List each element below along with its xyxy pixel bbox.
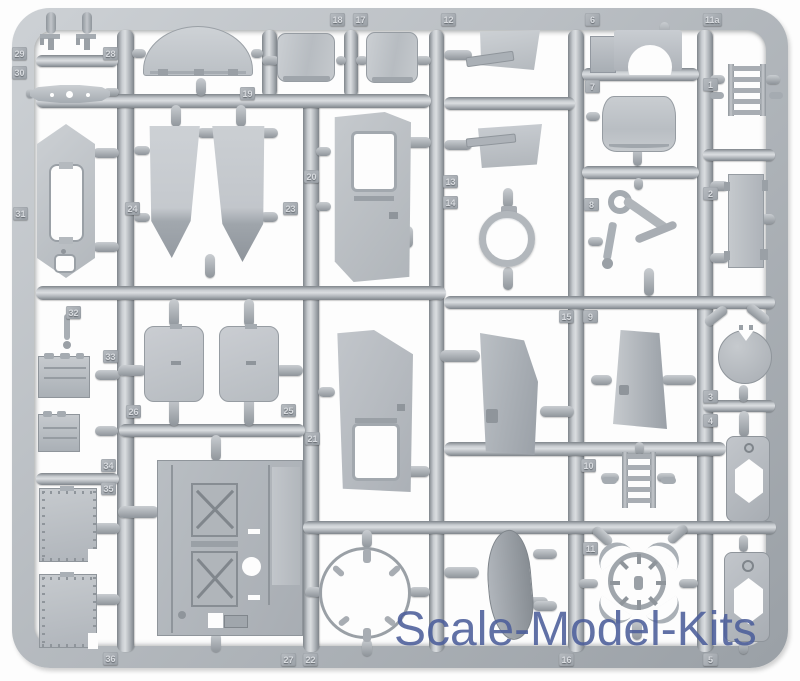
sprue-gate [739, 535, 748, 552]
part-detail [372, 77, 413, 82]
part-detail [48, 38, 54, 50]
part-detail [724, 182, 730, 191]
part-number-tag: 22 [303, 653, 318, 666]
part-number-tag: 26 [126, 405, 141, 418]
runner-vertical [697, 30, 713, 652]
part-number-tag: 1 [703, 78, 718, 91]
part-number-tag: 2 [703, 187, 718, 200]
part-hood-panel-7 [602, 96, 676, 152]
sprue-photo: 2930312819181712611a71202423131482321593… [0, 0, 800, 681]
part-detail [88, 633, 98, 649]
part-detail [40, 38, 44, 45]
part-detail [171, 465, 173, 633]
part-detail [609, 144, 669, 148]
sprue-gate [95, 370, 120, 380]
sprue-gate [586, 112, 600, 121]
part-detail [208, 613, 223, 628]
part-detail [60, 486, 74, 491]
part-detail [84, 38, 90, 50]
part-detail [246, 361, 256, 365]
part-number-tag: 13 [443, 175, 458, 188]
part-number-tag: 30 [12, 66, 27, 79]
part-detail [178, 611, 186, 619]
part-number-tag: 28 [103, 47, 118, 60]
part-detail [194, 69, 204, 75]
part-detail [76, 353, 84, 359]
part-number-tag: 32 [66, 306, 81, 319]
part-detail [602, 477, 617, 484]
part-number-tag: 34 [101, 459, 116, 472]
part-number-tag: 24 [125, 202, 140, 215]
part-detail [735, 459, 763, 503]
part-detail [486, 409, 498, 423]
part-detail [44, 377, 86, 379]
part-detail [57, 411, 66, 417]
part-number-tag: 3 [703, 390, 718, 403]
part-detail [248, 529, 260, 534]
part-number-tag: 12 [441, 13, 456, 26]
part-hex-frame-31 [37, 124, 95, 278]
part-detail [82, 12, 92, 34]
part-number-tag: 15 [559, 310, 574, 323]
sprue-gate [251, 49, 263, 58]
part-disc-3 [718, 328, 772, 388]
part-cab-door-20 [329, 112, 411, 282]
part-detail [397, 404, 405, 411]
part-number-tag: 31 [13, 207, 28, 220]
part-detail [66, 91, 73, 98]
part-detail [51, 166, 82, 240]
part-detail [63, 341, 71, 349]
runner-vertical [568, 30, 584, 652]
part-clamp-b [76, 12, 100, 48]
sprue-gate [93, 594, 120, 605]
part-ring-14 [477, 206, 541, 272]
part-number-tag: 23 [283, 202, 298, 215]
part-detail [389, 212, 398, 219]
part-detail [43, 437, 77, 439]
part-detail [43, 427, 77, 429]
part-detail [242, 557, 261, 576]
part-detail [44, 367, 86, 369]
part-detail [355, 426, 397, 478]
sprue-gate [93, 242, 119, 252]
part-detail [363, 628, 371, 642]
part-rivet-panel-35 [39, 488, 97, 562]
part-detail [354, 196, 394, 201]
part-number-tag: 21 [305, 432, 320, 445]
part-crossbar-30 [30, 85, 110, 103]
part-detail [59, 237, 73, 244]
part-pin-32 [62, 314, 72, 350]
part-ladder-1 [723, 64, 771, 116]
sprue-gate [236, 105, 246, 127]
part-detail [42, 491, 96, 494]
sprue-gate [93, 523, 120, 534]
part-detail [610, 581, 620, 585]
part-detail [42, 577, 45, 647]
sprue-gate [662, 375, 696, 385]
part-hatch-26b [219, 326, 279, 402]
part-detail [228, 69, 238, 75]
part-detail [762, 180, 768, 191]
sprue-gate [540, 406, 574, 417]
sprue-gate [244, 299, 254, 327]
sprue-gate [132, 49, 146, 58]
part-panel-18 [277, 33, 335, 82]
sprue-gate [503, 188, 513, 208]
part-detail [61, 249, 66, 254]
part-number-tag: 20 [304, 170, 319, 183]
part-detail [744, 443, 754, 453]
part-cab-door-21 [335, 330, 413, 492]
part-detail [733, 66, 761, 115]
part-detail [760, 249, 768, 260]
part-number-tag: 18 [330, 13, 345, 26]
part-detail [43, 411, 52, 417]
part-ladder-10 [616, 452, 662, 510]
part-detail [42, 577, 96, 580]
part-frame-4 [726, 436, 770, 522]
part-number-tag: 9 [583, 310, 598, 323]
sprue-gate [171, 105, 181, 127]
sprue-gate [440, 350, 480, 362]
part-clamp-a [40, 12, 64, 48]
part-step-12 [466, 28, 544, 82]
part-detail [191, 541, 238, 547]
part-detail [60, 353, 70, 359]
part-detail [86, 93, 90, 97]
part-number-tag: 11a [703, 13, 722, 26]
part-number-tag: 8 [584, 198, 599, 211]
part-box-33b [38, 414, 80, 452]
sprue-gate [118, 506, 159, 518]
part-curved-panel-9 [613, 330, 667, 429]
part-number-tag: 33 [103, 350, 118, 363]
runner-horizontal [703, 149, 775, 161]
sprue-gate [205, 254, 215, 278]
part-detail [60, 572, 74, 577]
part-number-tag: 36 [103, 652, 118, 665]
part-number-tag: 17 [353, 13, 368, 26]
part-detail [44, 353, 54, 359]
part-detail [480, 333, 538, 455]
part-detail [710, 92, 724, 99]
sprue-gate [275, 365, 303, 376]
part-detail [637, 554, 641, 564]
runner-vertical [117, 30, 134, 652]
sprue-gate [591, 375, 612, 385]
part-detail [88, 549, 98, 563]
sprue-gate [211, 435, 221, 461]
part-detail [479, 211, 535, 267]
part-detail [742, 560, 754, 572]
part-detail [42, 491, 45, 561]
part-detail [363, 549, 371, 563]
sprue-gate [533, 549, 557, 559]
part-floor-panel-27 [157, 460, 303, 636]
runner-horizontal [582, 166, 699, 179]
part-detail [46, 12, 56, 34]
part-detail [603, 222, 617, 261]
runner-vertical [344, 30, 358, 98]
part-detail [76, 38, 80, 45]
runner-horizontal [444, 97, 575, 110]
sprue-gate [588, 237, 603, 246]
part-detail [355, 418, 397, 423]
sprue-gate [134, 146, 150, 155]
part-detail [634, 576, 643, 590]
part-panel-2 [728, 174, 764, 268]
sprue-gate [93, 148, 119, 158]
part-detail [224, 615, 248, 628]
part-number-tag: 10 [581, 459, 596, 472]
runner-horizontal [36, 286, 446, 300]
runner-vertical [429, 30, 444, 652]
part-detail [656, 581, 666, 585]
sprue-gate [118, 365, 146, 376]
part-number-tag: 4 [703, 414, 718, 427]
part-detail [272, 467, 300, 585]
sprue-gate [196, 78, 206, 96]
runner-horizontal [303, 521, 776, 534]
part-detail [283, 76, 330, 81]
part-detail [619, 385, 629, 395]
sprue-gate [318, 387, 335, 397]
part-number-tag: 11 [583, 542, 598, 555]
part-number-tag: 27 [281, 653, 296, 666]
part-number-tag: 35 [101, 482, 116, 495]
part-detail [158, 69, 168, 75]
part-detail [170, 324, 182, 329]
part-detail [661, 477, 676, 484]
part-detail [478, 124, 542, 168]
part-detail [268, 465, 270, 605]
part-detail [245, 324, 257, 329]
part-fender-6 [590, 30, 684, 75]
sprue-gate [336, 56, 346, 65]
part-detail [50, 93, 54, 97]
part-detail [248, 595, 260, 600]
part-detail [724, 251, 730, 260]
part-panel-17 [366, 32, 418, 83]
part-detail [627, 454, 651, 507]
part-detail [590, 36, 616, 73]
part-detail [59, 162, 73, 169]
part-detail [769, 92, 783, 99]
part-number-tag: 29 [12, 47, 27, 60]
sprue-gate [444, 567, 479, 578]
sprue-gate [169, 299, 179, 327]
part-number-tag: 19 [240, 87, 255, 100]
part-bracket-8 [604, 188, 670, 276]
part-curved-panel-15 [480, 333, 538, 455]
part-number-tag: 25 [281, 404, 296, 417]
part-detail [354, 134, 394, 189]
part-step-13 [466, 116, 544, 170]
part-number-tag: 14 [443, 196, 458, 209]
part-number-tag: 7 [585, 80, 600, 93]
part-detail [56, 256, 74, 271]
watermark-text: Scale-Model-Kits [394, 602, 757, 657]
part-hatch-26a [144, 326, 204, 402]
part-rivet-panel-36 [39, 574, 97, 648]
part-detail [171, 361, 181, 365]
part-detail [602, 258, 613, 269]
sprue-gate [95, 426, 118, 436]
sprue-gate [739, 411, 749, 437]
part-box-33a [38, 356, 90, 398]
part-number-tag: 6 [585, 13, 600, 26]
